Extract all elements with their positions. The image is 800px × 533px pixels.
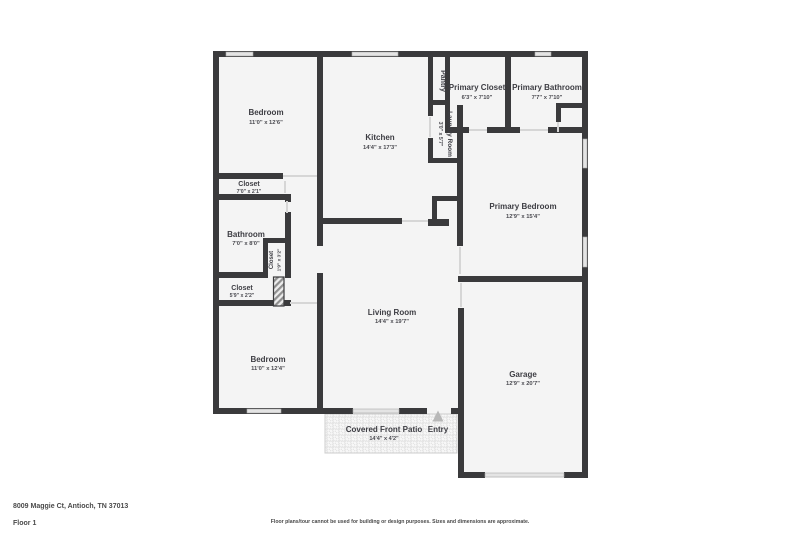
room-label-patio: Covered Front Patio [346,425,423,434]
window [352,52,398,56]
room-dims-living-room: 14'4" x 19'7" [375,319,409,325]
room-label-closet-lower: Closet [231,285,253,292]
wall [213,51,219,414]
room-label-laundry: Laundry Room [446,111,453,157]
wall [213,173,283,179]
wall [458,276,588,282]
room-label-closet-hall: Closet [238,181,260,188]
room-label-primary-closet: Primary Closet [449,83,506,92]
wall [432,196,437,222]
room-label-bedroom-top: Bedroom [248,108,283,117]
door-opening [290,302,317,304]
wall [321,408,353,414]
wall [213,300,274,306]
wall [284,300,291,306]
wall [556,103,561,122]
wall [285,212,291,242]
room-dims-laundry: 3'0" x 5'7" [437,122,443,147]
door-opening [557,122,559,132]
door-opening [283,175,317,177]
wall [428,219,449,226]
wall [428,100,433,116]
wall [487,127,520,133]
footer-address: 8009 Maggie Ct, Antioch, TN 37013 [13,503,128,510]
room-label-primary-bedroom: Primary Bedroom [489,202,556,211]
wall [285,242,291,278]
room-label-bedroom-bottom: Bedroom [250,355,285,364]
door-opening [459,247,461,274]
room-dims-closet-lower: 5'9" x 2'2" [230,293,255,299]
door-opening [469,129,487,131]
floor-plan-canvas: Bedroom 11'0" x 12'6" Kitchen 14'4" x 17… [0,0,800,533]
door-opening [286,201,288,213]
room-dims-primary-bathroom: 7'7" x 7'10" [532,95,563,101]
wall [457,105,463,246]
room-dims-primary-bedroom: 12'9" x 15'4" [506,214,540,220]
wall [213,51,588,57]
window [583,139,587,168]
door-opening [284,181,286,193]
room-label-bathroom: Bathroom [227,230,265,239]
room-dims-bedroom-top: 11'0" x 12'6" [249,120,283,126]
room-label-kitchen: Kitchen [365,133,394,142]
room-dims-bedroom-bottom: 11'0" x 12'4" [251,366,285,372]
wall [317,57,323,246]
room-dims-garage: 12'9" x 20'7" [506,381,540,387]
wall [317,273,323,414]
window [353,409,399,413]
window [226,52,253,56]
wall [548,127,588,133]
room-dims-patio: 14'4" x 4'2" [369,436,399,442]
room-label-living-room: Living Room [368,308,416,317]
wall [564,472,588,478]
wall [321,218,402,224]
door-opening [520,129,548,131]
room-label-pantry: Pantry [439,70,446,92]
wall [213,272,263,278]
floor-plan-page: Bedroom 11'0" x 12'6" Kitchen 14'4" x 17… [0,0,800,533]
door-opening [402,220,428,222]
wall [428,57,433,105]
room-label-entry: Entry [428,425,449,434]
wall [285,194,291,202]
window [583,237,587,267]
room-dims-bathroom: 7'0" x 8'0" [232,241,260,247]
window [535,52,551,56]
garage-door [485,473,564,477]
wall [399,408,427,414]
room-label-garage: Garage [509,370,537,379]
room-dims-primary-closet: 6'3" x 7'10" [462,95,493,101]
room-label-closet-small: Closet [269,251,275,269]
wall [458,308,464,478]
room-dims-closet-hall: 7'0" x 2'1" [237,189,262,195]
footer: 8009 Maggie Ct, Antioch, TN 37013 Floor … [13,503,530,527]
wall [263,238,268,278]
chase-hatch [274,277,285,306]
room-dims-closet-small: 1'9" x 3'2" [277,249,283,272]
door-opening [460,283,462,307]
room-label-primary-bathroom: Primary Bathroom [512,83,582,92]
footer-floor: Floor 1 [13,520,36,527]
window [247,409,281,413]
wall [505,57,511,133]
door-opening [429,117,431,137]
footer-disclaimer: Floor plans/tour cannot be used for buil… [271,519,530,525]
room-dims-kitchen: 14'4" x 17'3" [363,145,397,151]
